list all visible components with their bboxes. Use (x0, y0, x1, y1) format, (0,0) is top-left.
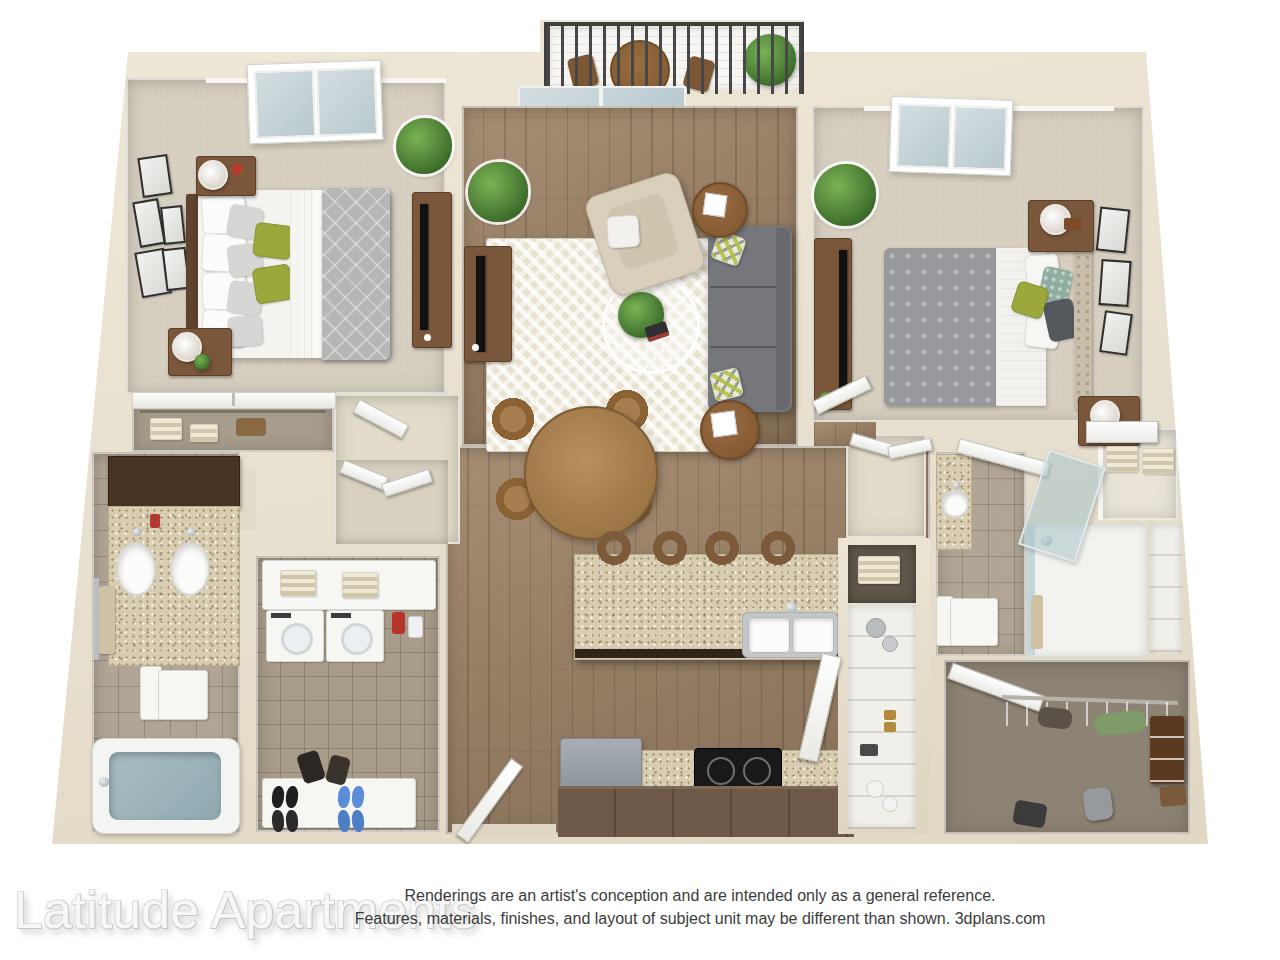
double-sink (742, 612, 838, 658)
burner (707, 757, 735, 785)
bathtub-basin (109, 752, 221, 820)
vessel-sink (941, 490, 969, 518)
plate-stack (882, 796, 898, 812)
towel-stack (858, 556, 900, 584)
bedroom-1-tv-console (412, 192, 452, 348)
faucet (953, 482, 960, 489)
closet-towels (150, 418, 182, 440)
toilet-bowl (158, 670, 208, 720)
sliding-door-mullion (599, 88, 603, 108)
bedroom-2-closet-doors (1086, 421, 1158, 443)
balcony-railing (544, 22, 804, 94)
closet-rod (140, 410, 326, 413)
hangers (1006, 702, 1174, 726)
sofa-backrest (776, 228, 790, 410)
canister (884, 722, 896, 732)
skylight-pane (316, 67, 378, 137)
decor-box (710, 410, 737, 437)
closet-bag (236, 418, 266, 436)
bedroom-1-skylight (247, 60, 384, 145)
island-faucet (786, 602, 797, 613)
soap-bottle (150, 514, 160, 528)
bar-stool (704, 530, 740, 566)
decor-box (703, 193, 728, 218)
bathroom-2-shelf-nook (1150, 524, 1182, 654)
shoe-organizer (1150, 716, 1184, 784)
burner (743, 757, 771, 785)
dining-chair (490, 396, 536, 442)
disclaimer-line-2: Features, materials, finishes, and layou… (240, 907, 1160, 930)
pantry-shelves (848, 605, 916, 829)
tub-faucet (99, 777, 109, 787)
bed-1-pillow-gray (227, 315, 263, 347)
control-panel (331, 613, 351, 618)
linen-towels (1106, 446, 1138, 472)
sliding-door-track (232, 393, 235, 406)
books-stack (1064, 218, 1082, 230)
corner-plant (468, 162, 528, 222)
sofa-cushion-seam (710, 286, 776, 288)
bed-2-headboard (1074, 244, 1092, 410)
disclaimer: Renderings are an artist's conception an… (240, 884, 1160, 930)
tv-screen (476, 256, 485, 352)
bar-stool (596, 530, 632, 566)
bed-1-pillow-green (252, 222, 294, 260)
living-room-tv-console (464, 246, 512, 362)
skylight-pane (896, 103, 952, 169)
wall-art-frame (1099, 310, 1133, 355)
bathroom-1-doorway (240, 470, 256, 530)
plate-stack (866, 780, 884, 798)
pantry-block (838, 538, 930, 834)
bar-stool (760, 530, 796, 566)
toilet-bowl (950, 598, 998, 646)
decor-vase (424, 334, 431, 341)
towel-stack (342, 572, 378, 598)
bathtub (92, 738, 240, 834)
wall-art-frame (1098, 259, 1131, 307)
floor-plan-rendering: Latitude Apartments Renderings are an ar… (0, 0, 1280, 960)
pot (866, 618, 886, 638)
control-panel (271, 613, 291, 618)
kitchen-base-cabinets (558, 786, 854, 837)
dryer-door (341, 623, 373, 655)
tv-screen (420, 204, 428, 330)
linen-towels (1142, 448, 1174, 474)
apartment-structure (0, 0, 1280, 960)
bedroom-2-skylight (889, 96, 1014, 176)
bed-2-comforter (884, 248, 996, 406)
sink-basin (792, 617, 834, 653)
tv-screen (839, 250, 847, 394)
faucet (133, 528, 141, 536)
canister (884, 710, 896, 720)
closet-sliding-doors (132, 392, 336, 409)
faucet (187, 528, 195, 536)
table-lamp (198, 160, 228, 190)
wall-art-frame (1096, 207, 1130, 254)
dining-table (524, 406, 658, 540)
refrigerator (560, 738, 642, 790)
closet-towels (190, 424, 218, 442)
bar-stool (652, 530, 688, 566)
washer (266, 610, 324, 662)
bathroom-1-cabinet (108, 456, 240, 508)
decor-vase (472, 344, 479, 351)
armchair-pillow (606, 215, 640, 249)
wall-art-frame (137, 154, 172, 198)
sofa-cushion-seam (710, 346, 776, 348)
small-plant (194, 354, 210, 370)
detergent-bottle (392, 612, 405, 634)
corner-plant (814, 164, 876, 226)
pot (882, 636, 898, 652)
corner-plant (396, 118, 452, 174)
washer-door (281, 623, 313, 655)
detergent-jug (408, 616, 423, 638)
pantry-box (860, 744, 878, 756)
dryer (326, 610, 384, 662)
gray-bag (1082, 786, 1114, 822)
wall-art-frame (160, 205, 186, 245)
bed-1-sheet (290, 190, 316, 358)
flower-vase (232, 164, 243, 175)
hanging-towel (99, 586, 115, 654)
skylight-pane (952, 105, 1008, 171)
sink-basin (748, 617, 790, 653)
disclaimer-line-1: Renderings are an artist's conception an… (240, 884, 1160, 907)
shower-towel (1031, 595, 1043, 649)
hanging-garment-dark (1037, 706, 1073, 729)
skylight-pane (254, 69, 316, 139)
bed-1-pillow-green (251, 263, 294, 305)
towel-stack (280, 570, 316, 596)
bed-1-comforter (322, 188, 390, 360)
storage-box (1159, 785, 1187, 807)
